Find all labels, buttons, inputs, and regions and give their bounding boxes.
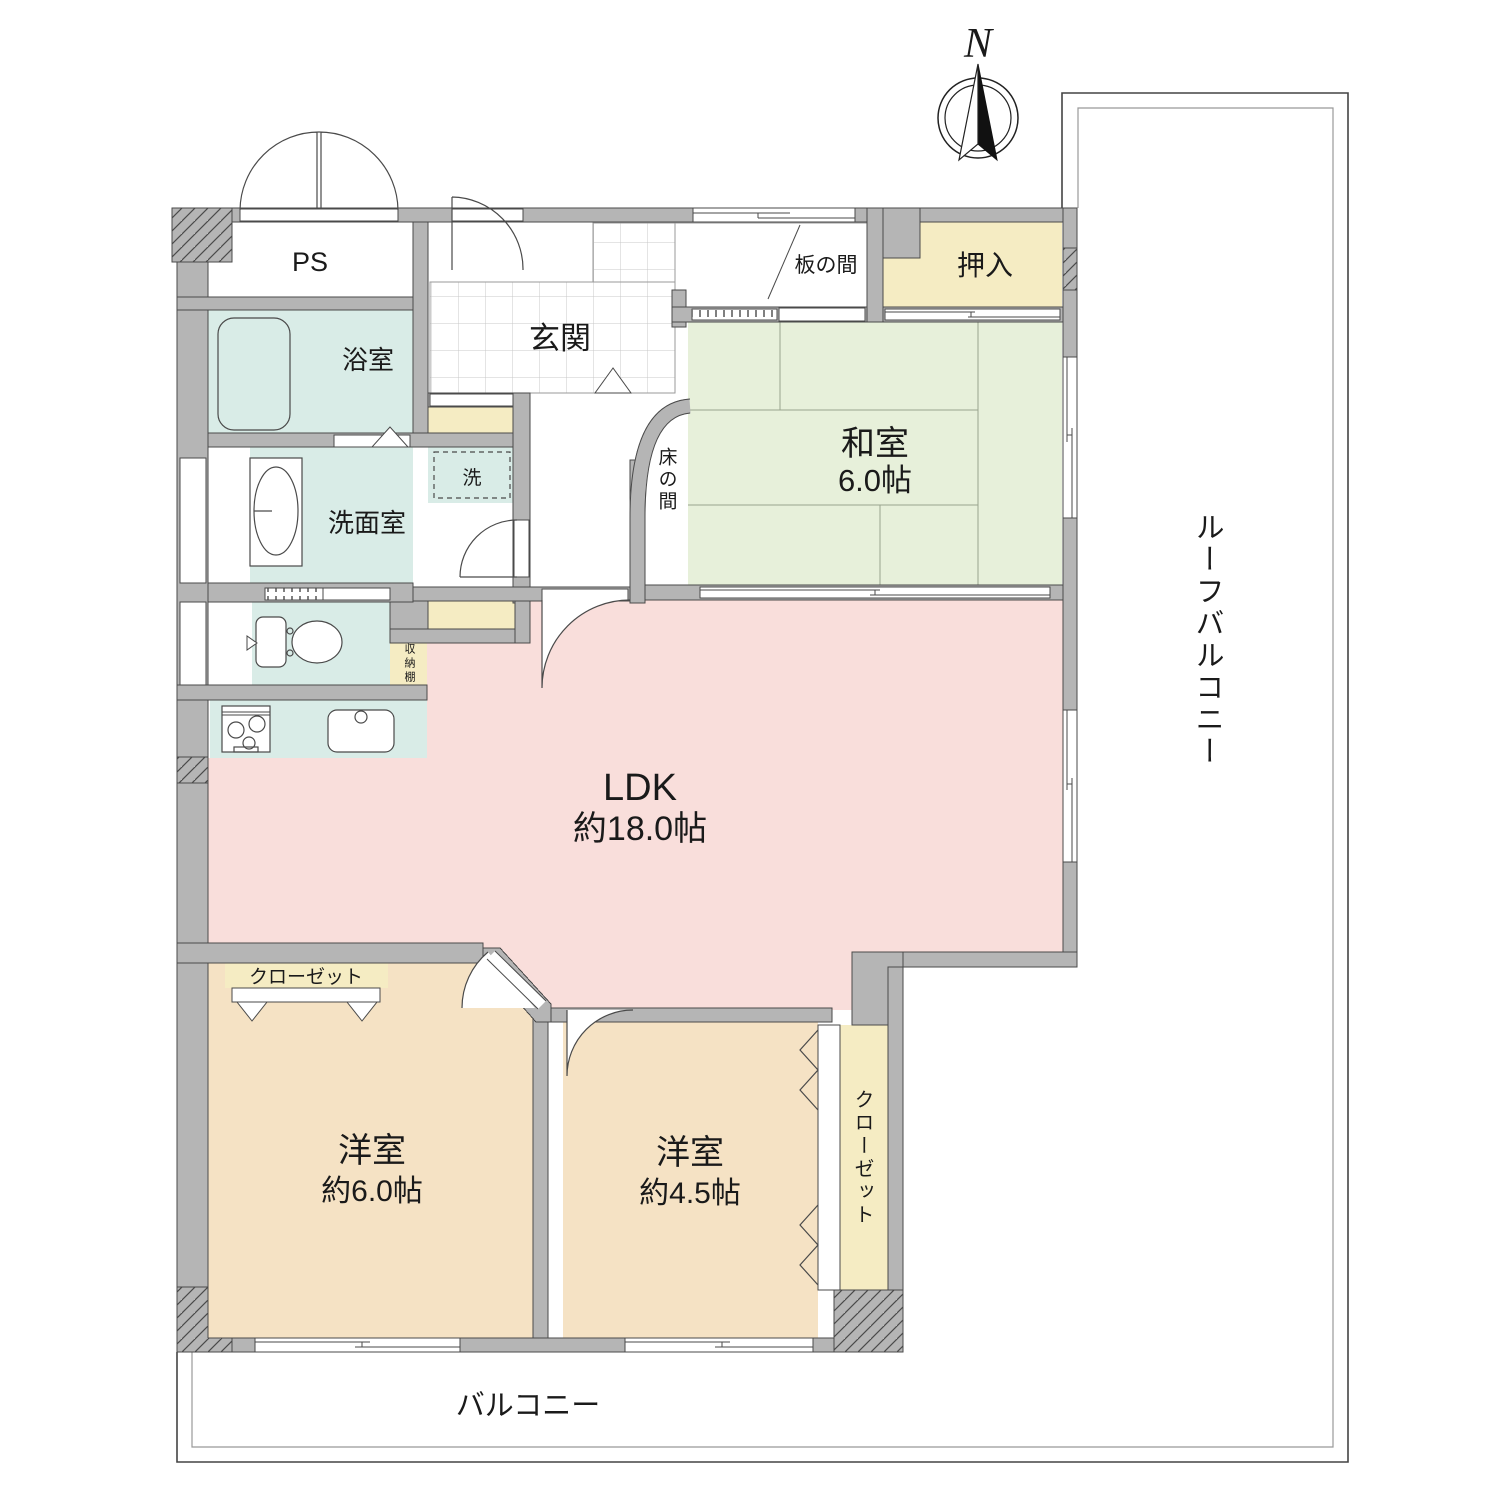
room-size-western-1: 約6.0帖 bbox=[321, 1175, 423, 1208]
room-label-tokonoma: 床の間 bbox=[656, 447, 678, 513]
room-label-washitsu: 和室 bbox=[841, 425, 909, 463]
room-entrance-tile-upper bbox=[593, 223, 675, 282]
label-closet-1: クローゼット bbox=[249, 966, 363, 988]
room-label-washroom: 洗面室 bbox=[328, 508, 406, 538]
room-size-washitsu: 6.0帖 bbox=[838, 463, 912, 498]
room-label-ldk: LDK bbox=[603, 767, 677, 809]
label-balcony: バルコニー bbox=[456, 1390, 600, 1422]
room-label-western-2: 洋室 bbox=[656, 1134, 724, 1172]
floor-plan-page: N PS 浴室 洗面室 洗 玄関 板の間 押入 和室 6.0帖 床の間 収納棚 … bbox=[0, 0, 1500, 1500]
shoe-cabinet bbox=[428, 407, 515, 433]
stove bbox=[222, 706, 270, 752]
compass: N bbox=[938, 21, 1018, 160]
room-label-entrance: 玄関 bbox=[529, 321, 591, 356]
room-label-western-1: 洋室 bbox=[338, 1132, 406, 1170]
label-storage-shelf: 収納棚 bbox=[403, 643, 416, 685]
room-label-ps: PS bbox=[292, 247, 328, 277]
kitchen-sink bbox=[328, 710, 394, 752]
room-size-western-2: 約4.5帖 bbox=[639, 1177, 741, 1210]
room-label-oshiire: 押入 bbox=[957, 250, 1013, 281]
storage-box bbox=[428, 601, 515, 629]
wash-basin bbox=[250, 458, 302, 566]
label-roof-balcony: ルーフバルコニー bbox=[1191, 512, 1223, 768]
label-closet-2: クローゼット bbox=[851, 1089, 873, 1227]
floor-plan-svg: N PS 浴室 洗面室 洗 玄関 板の間 押入 和室 6.0帖 床の間 収納棚 … bbox=[0, 0, 1500, 1500]
compass-north-label: N bbox=[963, 21, 994, 67]
room-size-ldk: 約18.0帖 bbox=[573, 810, 707, 848]
room-label-bathroom: 浴室 bbox=[342, 345, 394, 375]
room-label-itanoma: 板の間 bbox=[795, 254, 858, 277]
label-washer: 洗 bbox=[462, 467, 481, 489]
